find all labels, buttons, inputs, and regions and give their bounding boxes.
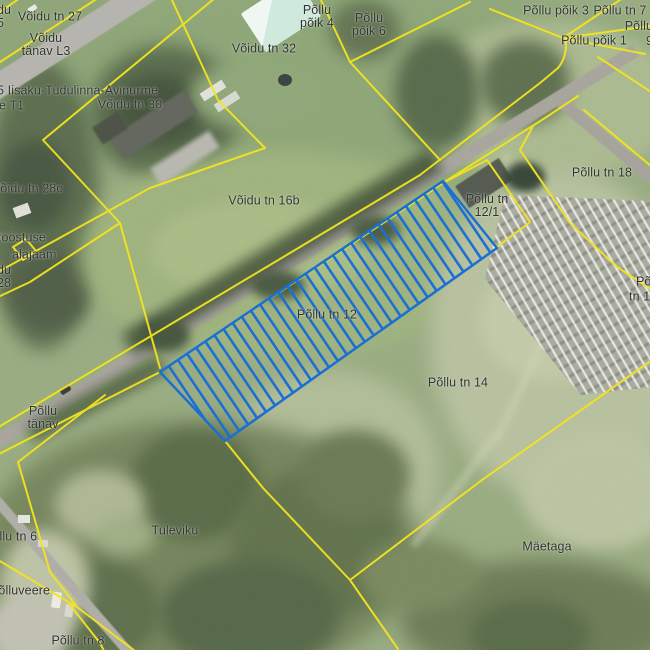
label-line: 5 xyxy=(0,17,11,30)
parcel-label-pollu-tn-12: Põllu tn 12 xyxy=(297,309,357,322)
parcel-label-fragment-tn-1: tn 1 xyxy=(629,291,650,304)
parcel-label-voidu-tn-32: Võidu tn 32 xyxy=(232,43,296,56)
label-line: 12/1 xyxy=(466,206,509,219)
label-line: tänav xyxy=(27,418,58,431)
parcel-label-pollu-tn-12-1: Põllu tn 12/1 xyxy=(466,193,509,219)
parcel-label-pollu-poik-4: Põllu põik 4 xyxy=(300,4,334,30)
parcel-label-pollu-tn-7: Põllu tn 7 xyxy=(593,5,646,18)
parcel-label-voidu-tn-16b: Võidu tn 16b xyxy=(228,195,299,208)
terrain-forest xyxy=(10,250,90,330)
terrain-forest xyxy=(395,35,480,150)
parcel-label-fragment-25: du 5 xyxy=(0,4,11,30)
label-line: põik 4 xyxy=(300,17,334,30)
road-label-85-iisaku: 85 Iisaku-Tudulinna-Avinurme xyxy=(0,85,158,98)
house xyxy=(18,515,30,523)
parcel-label-fragment-alajaam: alajaam xyxy=(12,249,56,262)
parcel-label-fragment-itoostuse: itööstuse xyxy=(0,232,46,245)
parcel-label-pollu-tn-6: Põllu tn 6 xyxy=(0,531,37,544)
parcel-label-pollu-tn-8: Põllu tn 8 xyxy=(51,635,104,648)
label-line: 9 xyxy=(625,34,650,49)
parcel-label-maetaga: Mäetaga xyxy=(522,541,571,554)
parcel-label-pollu-poik-6: Põllu põik 6 xyxy=(352,12,386,38)
tree-blob xyxy=(140,318,190,352)
parcel-label-pollu-poik-1: Põllu põik 1 xyxy=(561,35,627,48)
parcel-label-voidu-tn-27: Võidu tn 27 xyxy=(18,11,82,24)
road-label-voidu-tanav-l3: Võidu tänav L3 xyxy=(22,32,71,58)
label-line: 28 xyxy=(0,277,11,290)
pond xyxy=(278,74,292,86)
parcel-label-pollu-poik-3: Põllu põik 3 xyxy=(523,5,589,18)
parcel-label-tuleviku: Tuleviku xyxy=(152,525,199,538)
parcel-label-fragment-po: Põ xyxy=(636,276,650,289)
terrain-forest xyxy=(360,540,480,610)
road-label-pollu-tanav: Põllu tänav xyxy=(27,405,58,431)
label-line: põik 6 xyxy=(352,25,386,38)
parcel-label-voidu-tn-28c: Võidu tn 28c xyxy=(0,183,63,196)
parcel-label-pollu-tn-18: Põllu tn 18 xyxy=(572,167,632,180)
map-viewport[interactable]: Võidu tn 27 du 5 Võidu tänav L3 85 Iisak… xyxy=(0,0,650,650)
parcel-label-pollu-tn-14: Põllu tn 14 xyxy=(428,377,488,390)
parcel-label-polluveere: Põlluveere xyxy=(0,585,50,598)
parcel-label-voidu-tn-30: Võidu tn 30 xyxy=(98,99,162,112)
parcel-label-fragment-pollu-9: Põllu 9 xyxy=(625,19,650,49)
label-line: Põllu xyxy=(625,19,650,34)
road-label-fragment-tee-t1: ee T1 xyxy=(0,100,24,113)
label-line: tänav L3 xyxy=(22,45,71,58)
tree-blob xyxy=(505,162,545,192)
parcel-label-fragment-du-28: du 28 xyxy=(0,264,11,290)
terrain-forest xyxy=(300,430,410,520)
terrain-clearing xyxy=(95,515,155,555)
house xyxy=(38,540,48,547)
